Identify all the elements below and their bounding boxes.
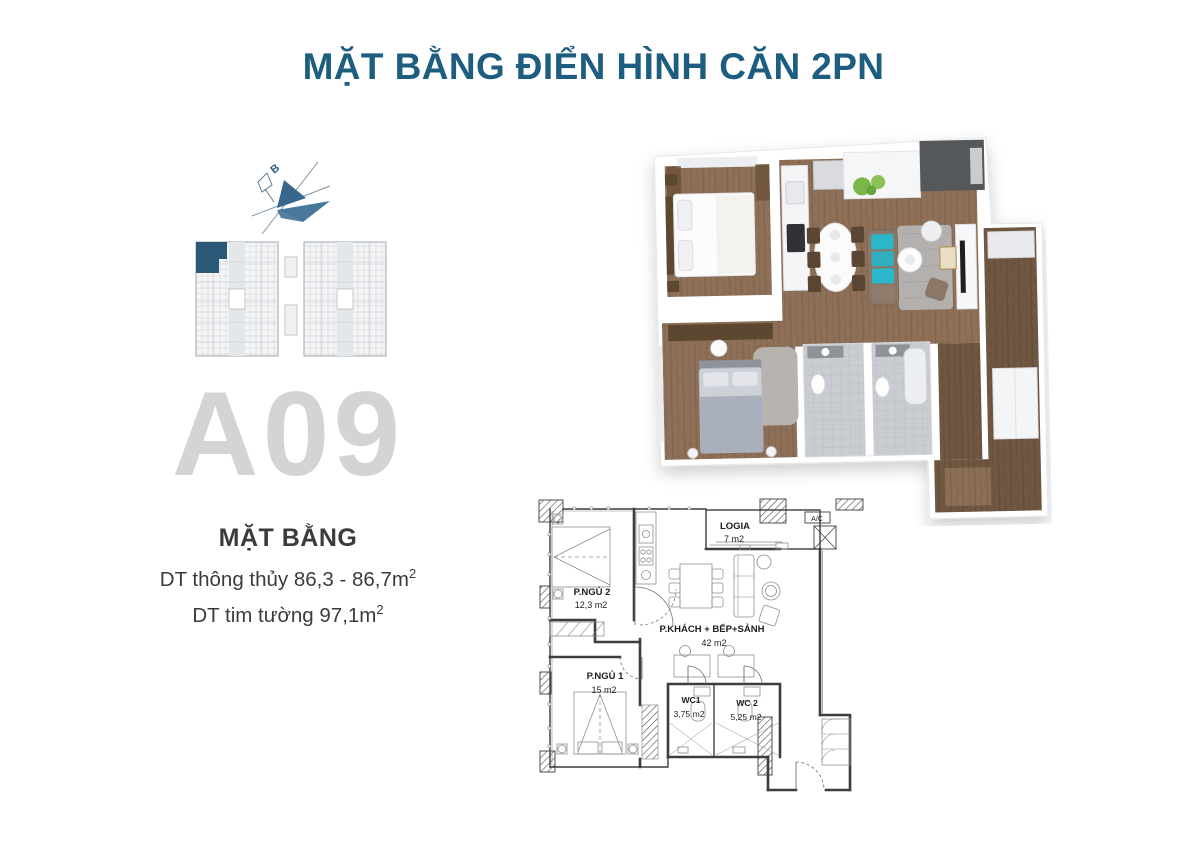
cooktop-3d — [787, 224, 806, 253]
page-title: MẶT BẰNG ĐIỂN HÌNH CĂN 2PN — [0, 46, 1187, 88]
bathtub-3d — [904, 348, 927, 405]
tv-console-3d — [955, 224, 977, 309]
room-labels-2d: LOGIA 7 m2 A/C P.NGỦ 2 12,3 m2 P.KHÁCH +… — [574, 516, 823, 722]
unit-info-heading: MẶT BẰNG — [103, 524, 473, 553]
sink-3d — [786, 182, 805, 204]
entry-mat-3d — [944, 467, 991, 506]
wc2-area: 5,25 m2 — [730, 712, 761, 722]
keyplan-bridge — [285, 257, 297, 335]
logia-area: 7 m2 — [724, 534, 744, 544]
bedroom1-3d — [665, 156, 772, 297]
walls-2d — [550, 509, 850, 790]
compass-dark-wing — [277, 180, 306, 208]
living-label: P.KHÁCH + BẾP+SẢNH — [660, 623, 765, 635]
round-chair-3d — [921, 221, 942, 242]
floorplan-3d-render — [636, 126, 1052, 532]
bedroom2-area: 12,3 m2 — [575, 600, 608, 610]
picture-frame-3d — [940, 247, 957, 269]
keyplan-right-tower — [304, 242, 386, 356]
unit-info-block: MẶT BẰNG DT thông thủy 86,3 - 86,7m2 DT … — [103, 524, 473, 638]
keyplan-left-tower — [196, 242, 278, 356]
floorplan-2d-drawing: LOGIA 7 m2 A/C P.NGỦ 2 12,3 m2 P.KHÁCH +… — [528, 487, 868, 794]
north-compass-icon: B — [246, 156, 334, 240]
toilet-3d — [811, 374, 825, 394]
logia-label: LOGIA — [720, 521, 750, 532]
wc1-label: WC1 — [681, 695, 700, 705]
living-area: 42 m2 — [701, 638, 726, 648]
net-area-line: DT thông thủy 86,3 - 86,7m2 — [103, 566, 473, 592]
desk-3d — [668, 323, 773, 341]
gross-area-line: DT tim tường 97,1m2 — [103, 602, 473, 628]
brochure-page: MẶT BẰNG ĐIỂN HÌNH CĂN 2PN B — [0, 0, 1187, 856]
doors-2d — [620, 587, 824, 790]
bedroom2-3d — [654, 320, 800, 460]
bedroom1-label: P.NGỦ 1 — [587, 670, 625, 682]
keyplan-thumbnail — [193, 237, 389, 361]
ac-label: A/C — [811, 516, 823, 523]
bedroom1-area: 15 m2 — [591, 685, 616, 695]
unit-code-watermark: A09 — [118, 374, 458, 494]
bathrooms-3d — [803, 342, 932, 457]
wc2-label: WC 2 — [736, 698, 758, 708]
compass-north-label: B — [268, 162, 282, 176]
bedroom2-label: P.NGỦ 2 — [574, 586, 611, 598]
wc1-area: 3,75 m2 — [673, 709, 704, 719]
